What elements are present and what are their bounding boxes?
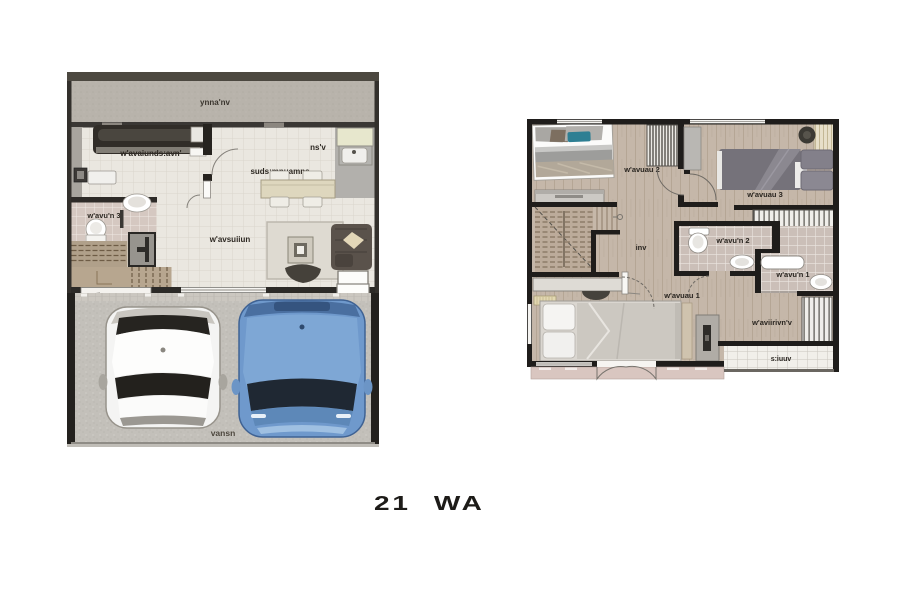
- svg-text:w'avu'n 2: w'avu'n 2: [715, 236, 749, 245]
- svg-text:w'avuau 1: w'avuau 1: [663, 291, 700, 300]
- svg-text:w'aviirivn'v: w'aviirivn'v: [751, 318, 793, 327]
- svg-text:w'avu'n 1: w'avu'n 1: [775, 270, 809, 279]
- svg-text:w'avaiunds:avn': w'avaiunds:avn': [119, 149, 181, 158]
- svg-text:ns'v: ns'v: [310, 143, 326, 152]
- svg-text:w'avu'n 3: w'avu'n 3: [86, 211, 120, 220]
- svg-text:w'avuau 2: w'avuau 2: [623, 165, 660, 174]
- svg-text:w'avuau 3: w'avuau 3: [746, 190, 783, 199]
- svg-text:w'avsuiiun: w'avsuiiun: [209, 235, 251, 244]
- svg-text:vansn: vansn: [211, 428, 236, 438]
- svg-text:inv: inv: [636, 243, 648, 252]
- svg-text:ynna'nv: ynna'nv: [200, 98, 230, 107]
- svg-text:s:iuuv: s:iuuv: [771, 356, 792, 363]
